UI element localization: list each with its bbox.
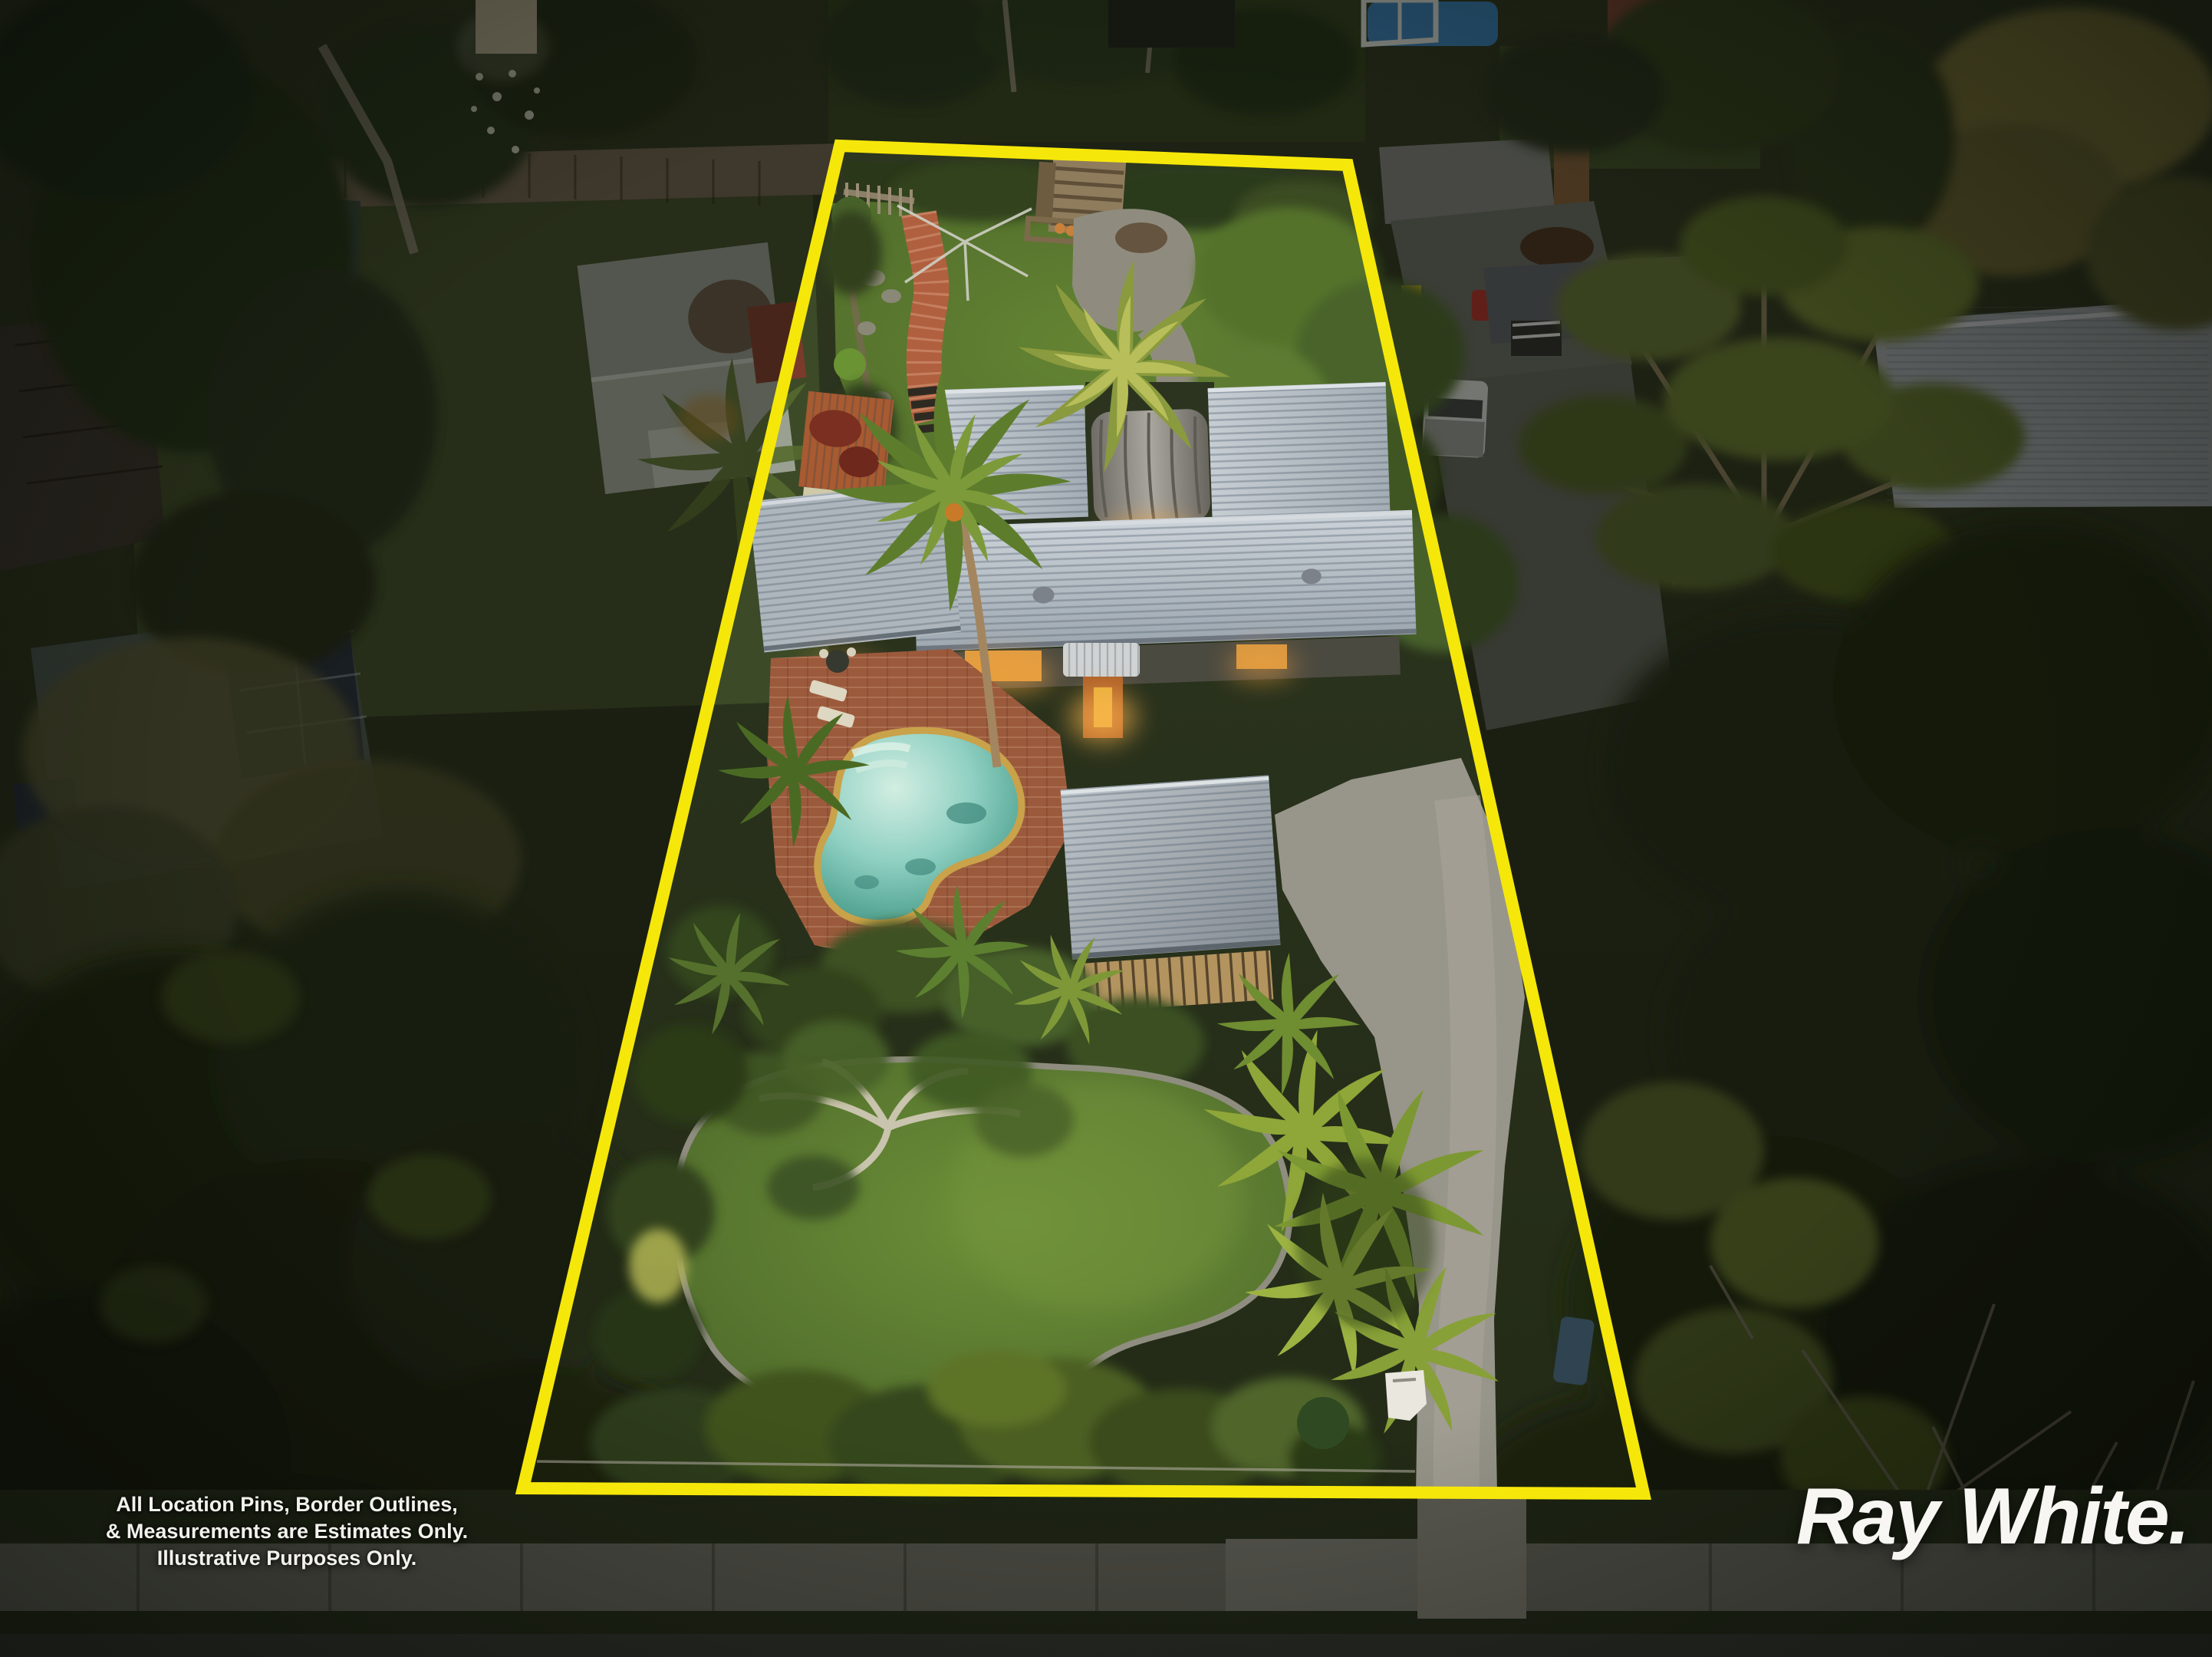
disclaimer-line-2: & Measurements are Estimates Only.	[83, 1518, 491, 1545]
disclaimer-line-1: All Location Pins, Border Outlines,	[83, 1491, 491, 1518]
aerial-property-photo: All Location Pins, Border Outlines, & Me…	[0, 0, 2212, 1657]
ray-white-logo: Ray White.	[1796, 1471, 2195, 1563]
vignette	[0, 0, 2212, 1657]
aerial-scene	[0, 0, 2212, 1657]
disclaimer-line-3: Illustrative Purposes Only.	[83, 1545, 491, 1572]
disclaimer-text: All Location Pins, Border Outlines, & Me…	[83, 1491, 491, 1572]
